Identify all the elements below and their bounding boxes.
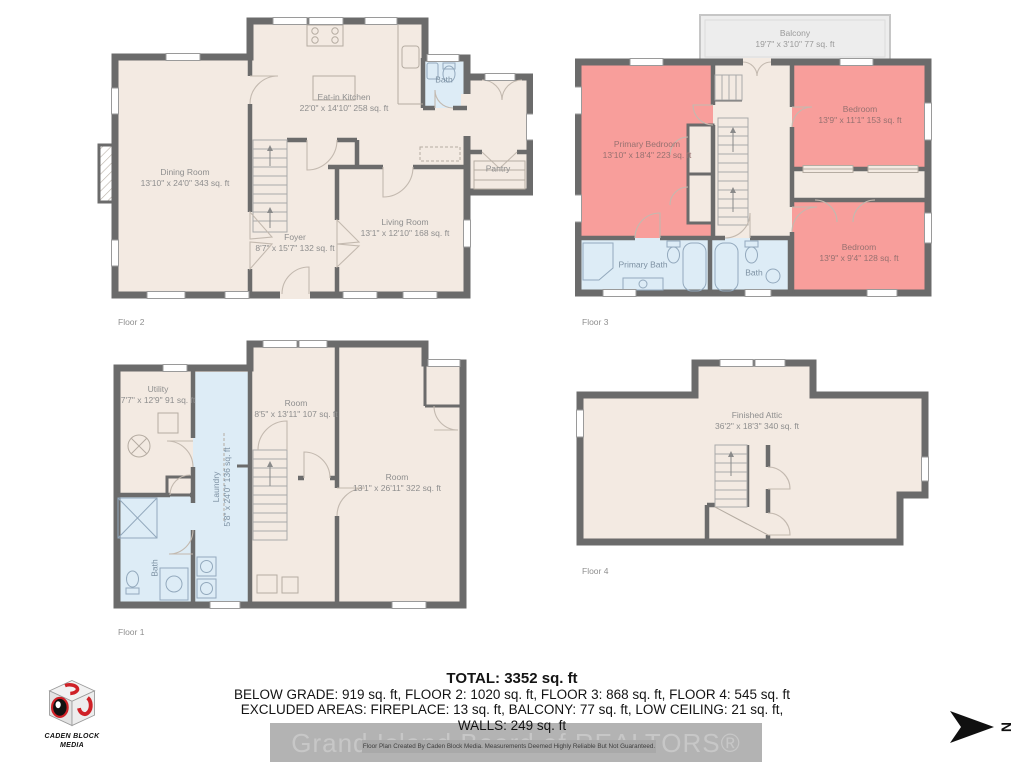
room-label-foyer: Foyer 8'7" x 15'7" 132 sq. ft <box>255 232 334 254</box>
room-label-living-room: Living Room 13'1" x 12'10" 168 sq. ft <box>361 217 450 239</box>
room-label-dining-room: Dining Room 13'10" x 24'0" 343 sq. ft <box>141 167 230 189</box>
room-label-primary-bedroom: Primary Bedroom 13'10" x 18'4" 223 sq. f… <box>603 139 692 161</box>
room-label-finished-attic: Finished Attic 36'2" x 18'3" 340 sq. ft <box>715 410 799 432</box>
room-label-room-large: Room 13'1" x 26'11" 322 sq. ft <box>353 472 441 494</box>
room-label-bath-f2: Bath <box>435 74 453 85</box>
floor4-plan: Finished Attic 36'2" x 18'3" 340 sq. ft <box>575 358 933 548</box>
room-label-primary-bath: Primary Bath <box>618 259 667 270</box>
room-label-bath-f3: Bath <box>745 267 763 278</box>
excluded-areas-line: EXCLUDED AREAS: FIREPLACE: 13 sq. ft, BA… <box>0 702 1024 718</box>
floor3-caption: Floor 3 <box>582 317 608 327</box>
disclaimer-strip: Floor Plan Created By Caden Block Media.… <box>362 740 656 753</box>
floor1-plan: Utility 7'7" x 12'9" 91 sq. ft Laundry 5… <box>112 338 472 616</box>
walls-area-line: WALLS: 249 sq. ft <box>0 718 1024 734</box>
room-label-balcony: Balcony 19'7" x 3'10" 77 sq. ft <box>755 28 834 50</box>
floor2-plan: Eat-in Kitchen 22'0" x 14'10" 258 sq. ft… <box>97 16 533 318</box>
floor1-stairs-icon <box>253 450 287 540</box>
area-summary: TOTAL: 3352 sq. ft BELOW GRADE: 919 sq. … <box>0 671 1024 733</box>
floor4-fill <box>580 363 925 542</box>
floorplan-page: { "floors": { "floor2": { "caption": "Fl… <box>0 0 1024 768</box>
floor2-stairs-icon <box>253 140 287 232</box>
room-label-utility: Utility 7'7" x 12'9" 91 sq. ft <box>121 384 196 406</box>
room-label-bedroom-lower: Bedroom 13'9" x 9'4" 128 sq. ft <box>819 242 898 264</box>
disclaimer-text: Floor Plan Created By Caden Block Media.… <box>362 740 656 753</box>
floor4-plan-svg <box>575 358 933 548</box>
room-label-laundry: Laundry 5'8" x 24'0" 136 sq. ft <box>211 447 233 526</box>
floor-areas-line: BELOW GRADE: 919 sq. ft, FLOOR 2: 1020 s… <box>0 687 1024 703</box>
room-label-eat-in-kitchen: Eat-in Kitchen 22'0" x 14'10" 258 sq. ft <box>300 92 389 114</box>
floor1-caption: Floor 1 <box>118 627 144 637</box>
total-area: TOTAL: 3352 sq. ft <box>0 671 1024 687</box>
room-label-bath-f1: Bath <box>149 559 160 577</box>
room-label-room-small: Room 8'5" x 13'11" 107 sq. ft <box>254 398 337 420</box>
room-label-bedroom-upper: Bedroom 13'9" x 11'1" 153 sq. ft <box>818 104 901 126</box>
floor4-caption: Floor 4 <box>582 566 608 576</box>
room-label-pantry: Pantry <box>486 163 511 174</box>
floor2-caption: Floor 2 <box>118 317 144 327</box>
floor3-plan: Balcony 19'7" x 3'10" 77 sq. ft Primary … <box>575 12 933 300</box>
logo-name-line2: MEDIA <box>30 742 114 751</box>
logo-name-line1: CADEN BLOCK <box>30 733 114 742</box>
